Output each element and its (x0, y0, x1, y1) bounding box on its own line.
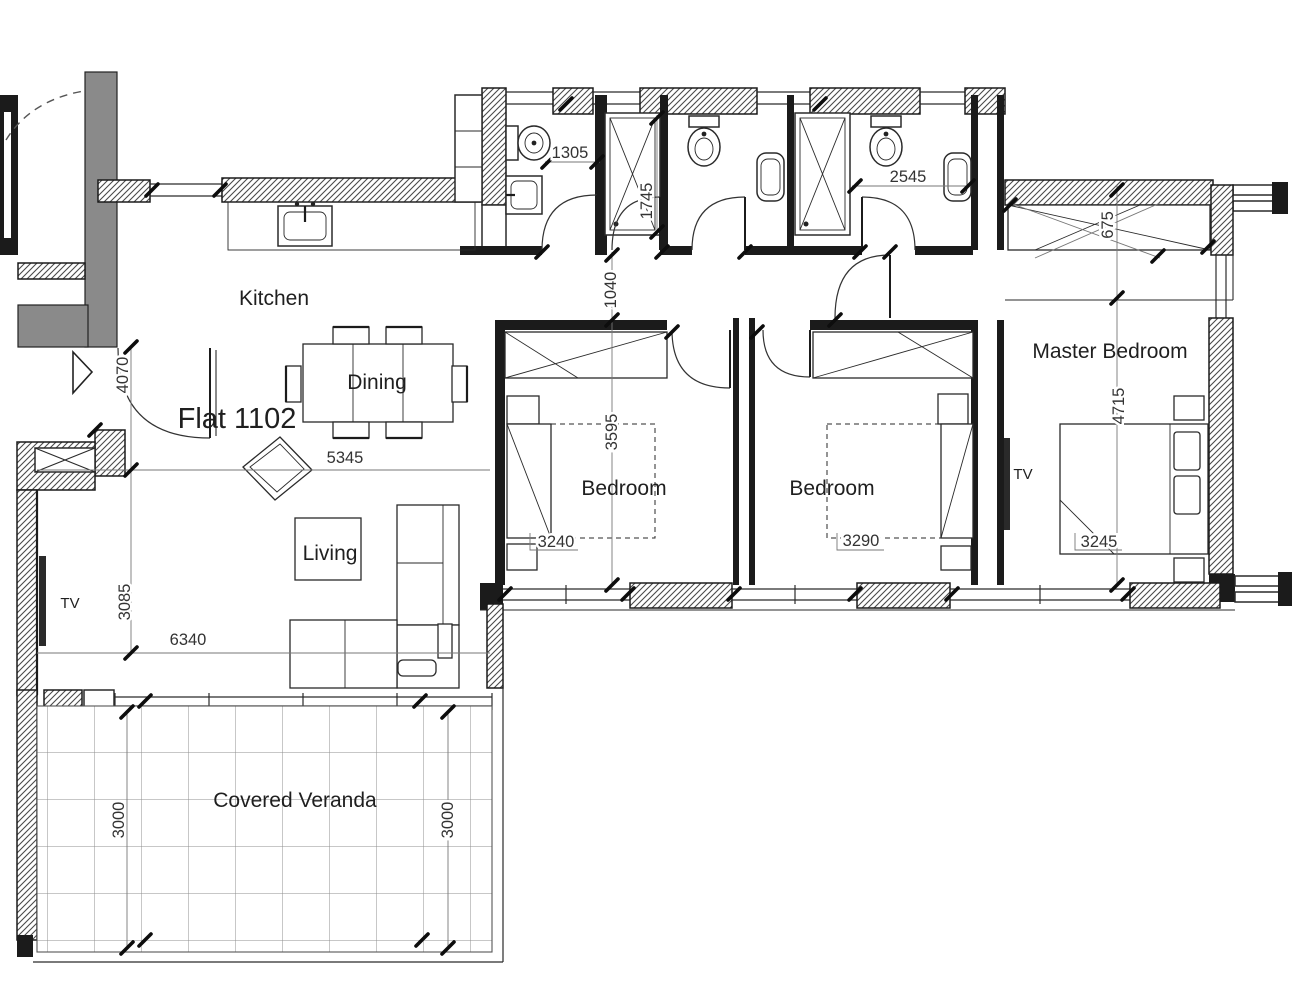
bedroom2-wardrobe (813, 332, 973, 378)
room-label-veranda: Covered Veranda (213, 789, 377, 812)
tv-label-living: TV (60, 595, 79, 612)
shower-bath1-wall (660, 95, 668, 255)
south-wall-pier-1 (630, 583, 732, 608)
neighbor-wall-slit (4, 112, 11, 238)
kitchen-wc-pier (482, 205, 506, 250)
entry-wall-stub (95, 430, 125, 476)
bedroom2-east-wall-b (997, 320, 1004, 585)
wc1-basin-icon (506, 176, 542, 214)
hall-east-wall-b (997, 95, 1004, 250)
dim-1040: 1040 (602, 272, 620, 309)
dim-3595: 3595 (603, 414, 621, 451)
room-label-master: Master Bedroom (1032, 340, 1187, 363)
column-box (35, 448, 95, 472)
dim-3085: 3085 (116, 584, 134, 621)
veranda (33, 688, 503, 962)
dim-1305: 1305 (552, 144, 589, 162)
party-wall-a (733, 318, 739, 585)
tv-label-master: TV (1013, 466, 1032, 483)
room-label-bedroom1: Bedroom (581, 477, 666, 500)
dim-4070: 4070 (114, 357, 132, 394)
kitchen-sink-icon (278, 202, 332, 246)
master-east-pier (1211, 185, 1233, 255)
living-west-wall (17, 490, 37, 695)
dim-3000-right: 3000 (439, 802, 457, 839)
dim-3000-left: 3000 (110, 802, 128, 839)
bedroom1-north-wall (495, 320, 667, 330)
bath1-basin-icon (757, 153, 784, 201)
master-bed (1060, 396, 1208, 582)
room-label-bedroom2: Bedroom (789, 477, 874, 500)
kitchen-tall-units (455, 95, 482, 202)
wc1-toilet-icon (506, 126, 550, 160)
veranda-west-wall (17, 690, 37, 940)
master-north-wall (1005, 180, 1213, 205)
dim-3240: 3240 (538, 533, 575, 551)
room-label-dining: Dining (347, 371, 407, 394)
dim-6340: 6340 (170, 631, 207, 649)
veranda-corner-stub (17, 935, 33, 957)
kitchen-wc-wall (482, 88, 506, 205)
living-tv-icon (39, 556, 46, 646)
party-wall-b (749, 318, 755, 585)
floor-plan-page: Flat 1102 Kitchen Dining Living Bedroom … (0, 0, 1308, 981)
dim-3290: 3290 (843, 532, 880, 550)
veranda-tile-floor (37, 706, 492, 952)
room-label-living: Living (303, 542, 358, 565)
dim-2545: 2545 (890, 168, 927, 186)
floor-plan-drawing: Flat 1102 Kitchen Dining Living Bedroom … (0, 0, 1308, 981)
kitchen-wall-pier (98, 180, 150, 202)
hall-east-wall-a (971, 95, 978, 250)
dim-675: 675 (1099, 211, 1117, 239)
bath1-bath2-wall (787, 95, 794, 255)
dim-3245: 3245 (1081, 533, 1118, 551)
dim-1745: 1745 (638, 183, 656, 220)
south-wall-pier-2 (857, 583, 950, 608)
bedroom1-west-wall (495, 320, 505, 585)
south-wall-pier-3 (1130, 583, 1220, 608)
veranda-east-stub (487, 604, 503, 688)
core-wall-hatched (18, 263, 85, 279)
master-east-wall (1209, 318, 1233, 574)
master-tv-icon (1004, 438, 1010, 530)
dim-4715: 4715 (1110, 388, 1128, 425)
bedroom1-wardrobe (505, 332, 667, 378)
bath2-basin-icon (944, 153, 971, 201)
kitchen-north-wall (222, 178, 480, 202)
bath1-toilet-icon (688, 116, 720, 166)
dim-5345: 5345 (327, 449, 364, 467)
core-wall-horizontal (18, 305, 88, 347)
bath2-toilet-icon (870, 116, 902, 166)
shower2-icon (795, 113, 850, 235)
room-label-kitchen: Kitchen (239, 287, 309, 310)
core-wall-vertical (85, 72, 117, 347)
flat-title: Flat 1102 (178, 403, 297, 435)
